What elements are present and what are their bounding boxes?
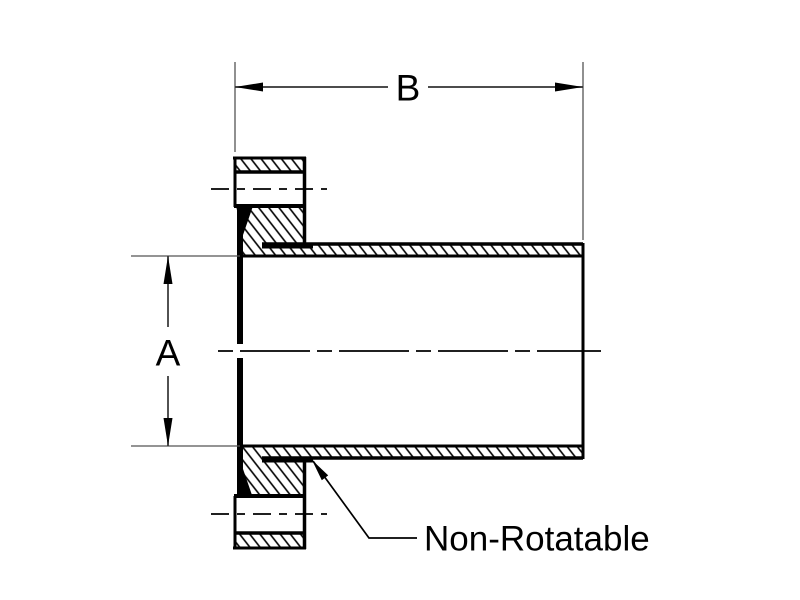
- flange-bottom-rim-hatch: [234, 534, 305, 548]
- flange-top-rim-hatch: [234, 158, 305, 172]
- tube-bottom-wall-hatch: [243, 446, 583, 458]
- drawing-canvas: B A Non-Rotatable: [0, 0, 800, 600]
- flange-bottom-body-hatch: [243, 458, 306, 496]
- flange-top-body-hatch: [243, 206, 306, 244]
- flange-drawing: B A Non-Rotatable: [0, 0, 800, 600]
- dim-a-label: A: [156, 333, 181, 374]
- leader-label: Non-Rotatable: [424, 520, 650, 559]
- dim-b-label: B: [396, 68, 421, 109]
